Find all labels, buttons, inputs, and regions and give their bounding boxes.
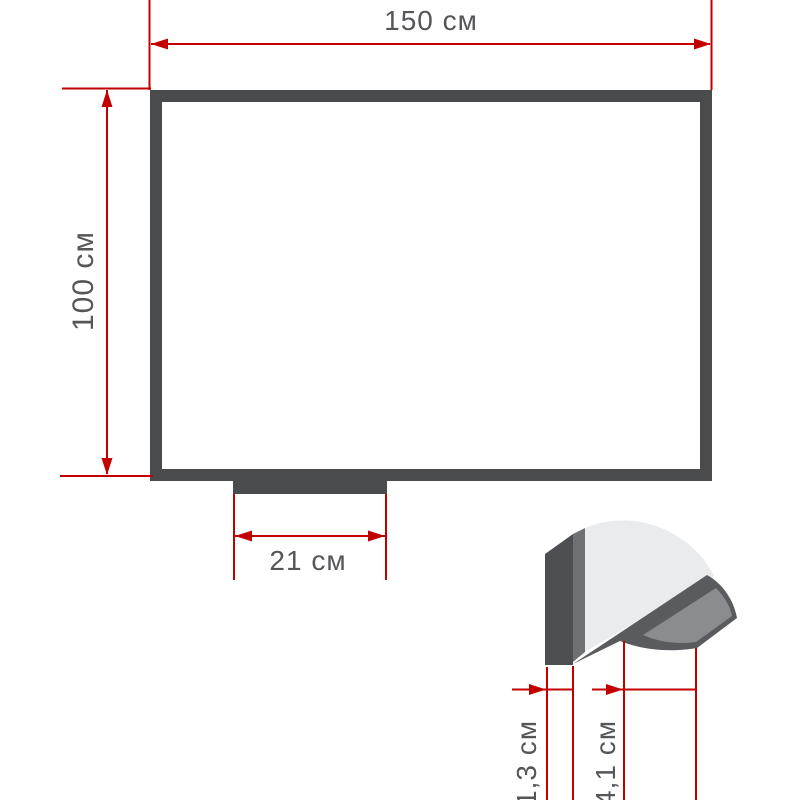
profile-thickness-dimension-label: 1,3 см (511, 703, 543, 800)
diagram-canvas: 150 см 100 см 21 см 1,3 см 4,1 см (0, 0, 800, 800)
arrowhead-left (235, 531, 252, 542)
arrowhead-right (368, 531, 385, 542)
edge-profile-detail (545, 520, 737, 665)
detail-frame-profile (545, 534, 573, 665)
arrowhead-right (529, 684, 546, 695)
board-surface (162, 102, 700, 469)
arrowhead-up (102, 90, 113, 107)
dimension-drawing (0, 0, 800, 800)
width-dimension-label: 150 см (361, 6, 501, 36)
arrowhead-right (606, 684, 623, 695)
height-dimension-label: 100 см (68, 211, 100, 351)
arrowhead-down (102, 458, 113, 475)
arrowhead-right (694, 39, 711, 50)
tray-depth-dimension-label: 4,1 см (590, 703, 622, 800)
detail-frame-edge (573, 528, 585, 662)
arrowhead-left (151, 39, 168, 50)
board-front-view (150, 90, 712, 494)
tray-width-dimension-label: 21 см (248, 546, 368, 576)
marker-tray-front (233, 481, 387, 494)
